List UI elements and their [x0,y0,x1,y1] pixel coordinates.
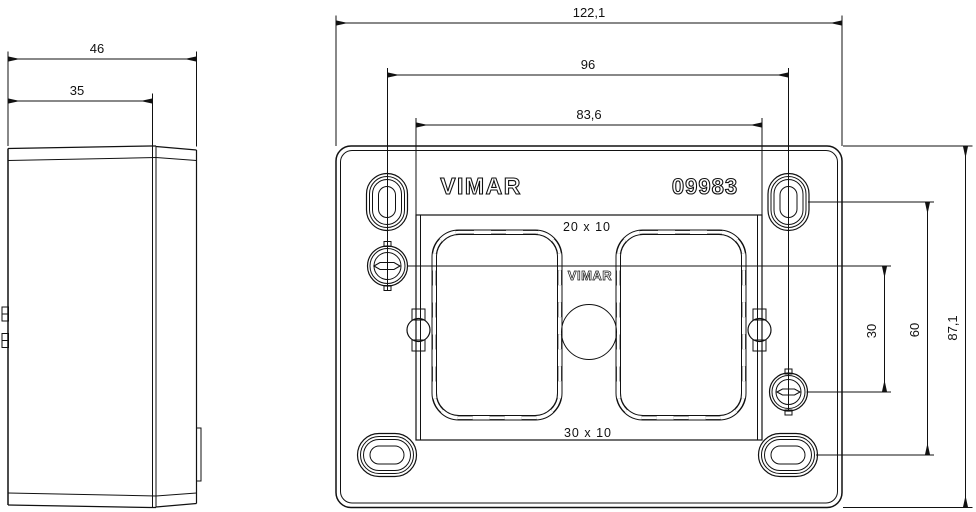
side-view-outline [8,146,201,508]
dim-side-depth-total: 46 [8,41,197,147]
technical-drawing-page: 46 35 [0,0,976,512]
knockout-bottom-label: 30 x 10 [564,426,612,440]
fixing-slot-bottom-left [358,434,417,477]
frame-outline [416,215,762,440]
dim-label-35: 35 [70,83,84,98]
dim-label-122-1: 122,1 [573,5,606,20]
brand-logo: VIMAR [440,173,522,199]
side-view: 46 35 [2,41,201,508]
dim-label-96: 96 [581,57,595,72]
dim-label-46: 46 [90,41,104,56]
mounting-frame: 20 x 10 30 x 10 VIMAR [407,215,771,440]
product-code: 09983 [672,174,738,199]
cover-outline [336,146,842,508]
fixing-slot-bottom-right [759,434,818,477]
dim-label-60: 60 [907,323,922,337]
center-knockout-hole [562,305,617,360]
dim-label-83-6: 83,6 [576,107,601,122]
frame-claw-right [748,309,771,351]
dim-height-screw-offset: 30 [407,266,891,392]
side-boss-tab [197,428,202,481]
module-opening-left [432,230,562,420]
frame-claw-left [407,309,430,351]
dim-label-87-1: 87,1 [945,315,960,340]
knockout-top-label: 20 x 10 [563,220,611,234]
technical-drawing: 46 35 [0,0,976,512]
dim-side-depth-body: 35 [8,83,153,146]
module-opening-right [616,230,746,420]
dim-label-30: 30 [864,324,879,338]
front-view: 20 x 10 30 x 10 VIMAR VIMAR 09983 122,1 … [336,5,973,508]
frame-brand-label: VIMAR [568,268,613,283]
